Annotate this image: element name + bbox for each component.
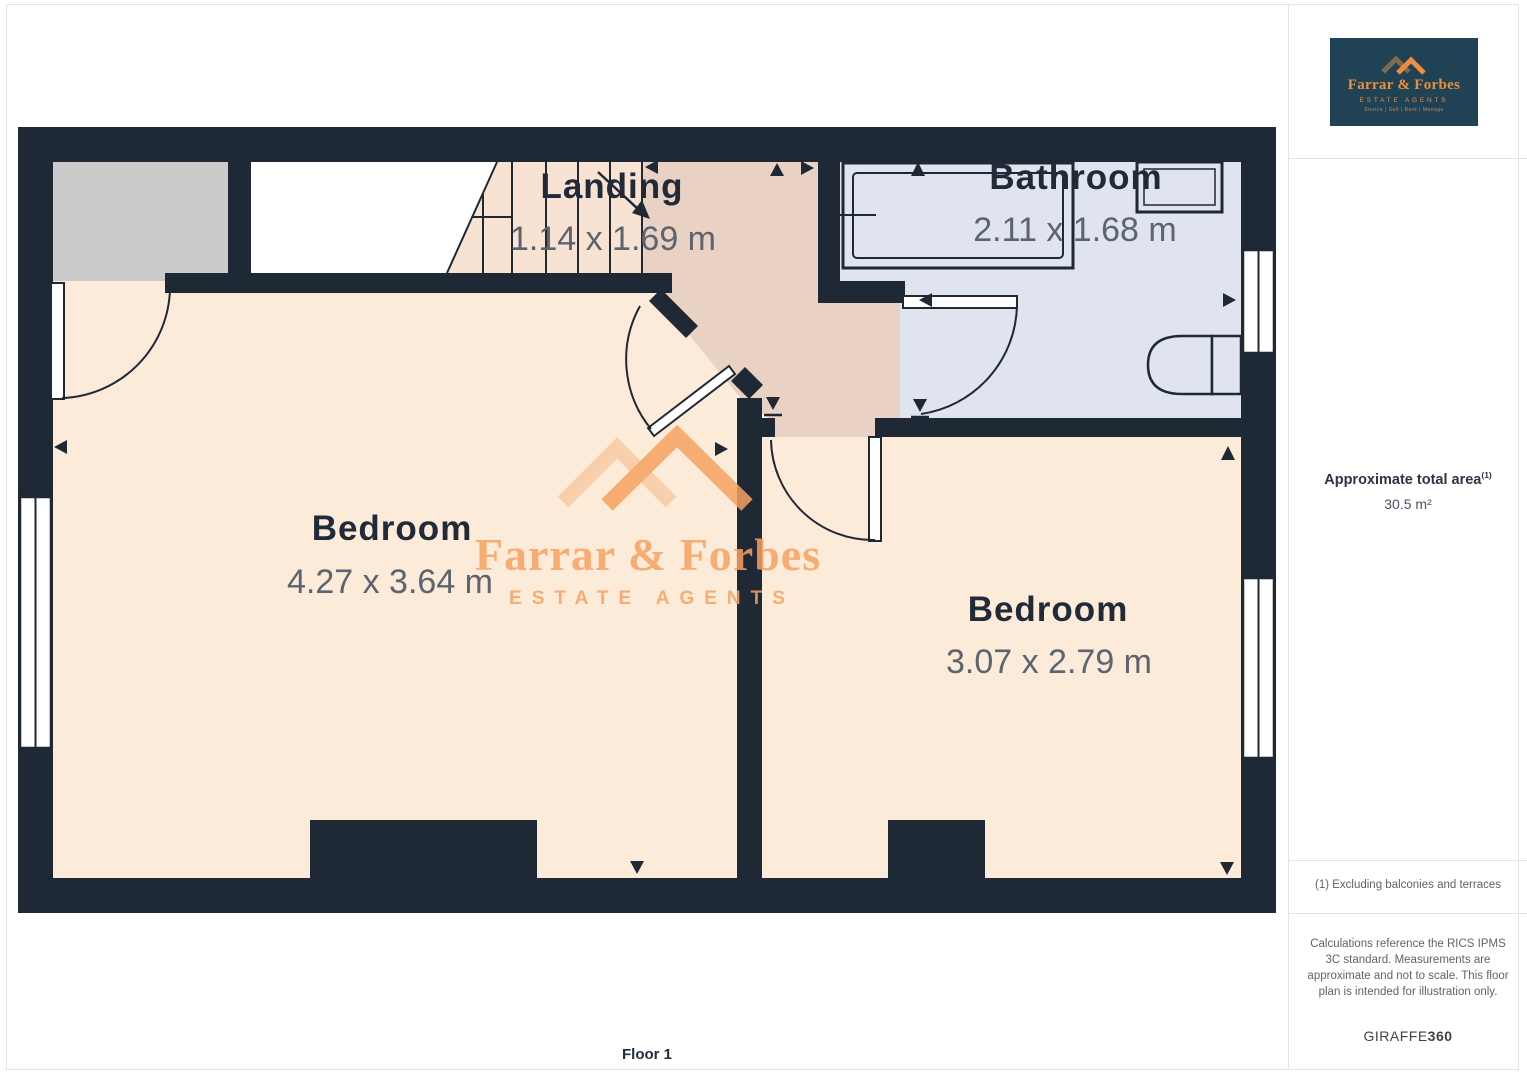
total-area-label: Approximate total area(1) (1289, 470, 1527, 488)
agency-name: Farrar & Forbes (1348, 77, 1461, 94)
giraffe360-brand: GIRAFFE360 (1289, 1028, 1527, 1044)
total-area-superscript: (1) (1481, 470, 1491, 480)
agency-roof-icon (1377, 51, 1431, 75)
giraffe360-brand-name: GIRAFFE (1363, 1028, 1427, 1044)
sidebar-section-divider (1289, 860, 1527, 861)
total-area-block: Approximate total area(1) 30.5 m² (1289, 470, 1527, 512)
floor-label: Floor 1 (18, 1046, 1276, 1063)
page-border (6, 4, 1519, 1070)
total-area-value: 30.5 m² (1289, 496, 1527, 512)
area-footnote: (1) Excluding balconies and terraces (1289, 879, 1527, 891)
total-area-label-text: Approximate total area (1324, 472, 1481, 488)
agency-tagline: Source | Sell | Rent | Manage (1364, 107, 1444, 113)
giraffe360-brand-suffix: 360 (1428, 1028, 1453, 1044)
disclaimer-text: Calculations reference the RICS IPMS 3C … (1303, 936, 1513, 1000)
agency-logo: Farrar & Forbes ESTATE AGENTS Source | S… (1330, 38, 1478, 126)
sidebar-section-divider (1289, 158, 1527, 159)
agency-subtitle: ESTATE AGENTS (1360, 97, 1449, 104)
floorplan-page: Landing 1.14 x 1.69 m Bathroom 2.11 x 1.… (0, 0, 1527, 1080)
sidebar-section-divider (1289, 913, 1527, 914)
sidebar-divider (1288, 4, 1289, 1070)
